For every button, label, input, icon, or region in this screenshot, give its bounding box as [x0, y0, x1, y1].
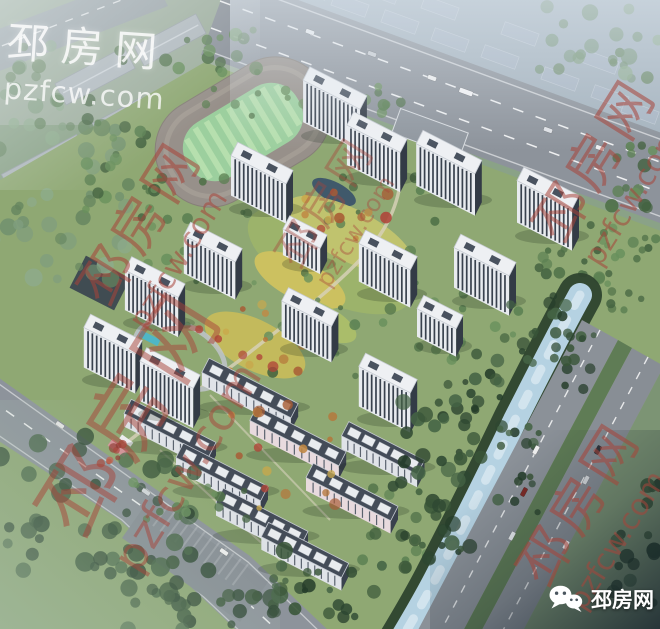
bottom-left-mist — [0, 400, 280, 629]
rendered-scene — [0, 0, 660, 629]
wechat-badge: 邳房网 — [548, 584, 654, 614]
wechat-icon — [548, 584, 584, 614]
top-haze — [230, 0, 660, 150]
top-left-fog — [0, 0, 260, 190]
aerial-rendering: 邳房网 pzfcw.com 邳房网 pzfcw.com 邳房网 pzfcw.co… — [0, 0, 660, 629]
wechat-badge-label: 邳房网 — [591, 584, 654, 614]
